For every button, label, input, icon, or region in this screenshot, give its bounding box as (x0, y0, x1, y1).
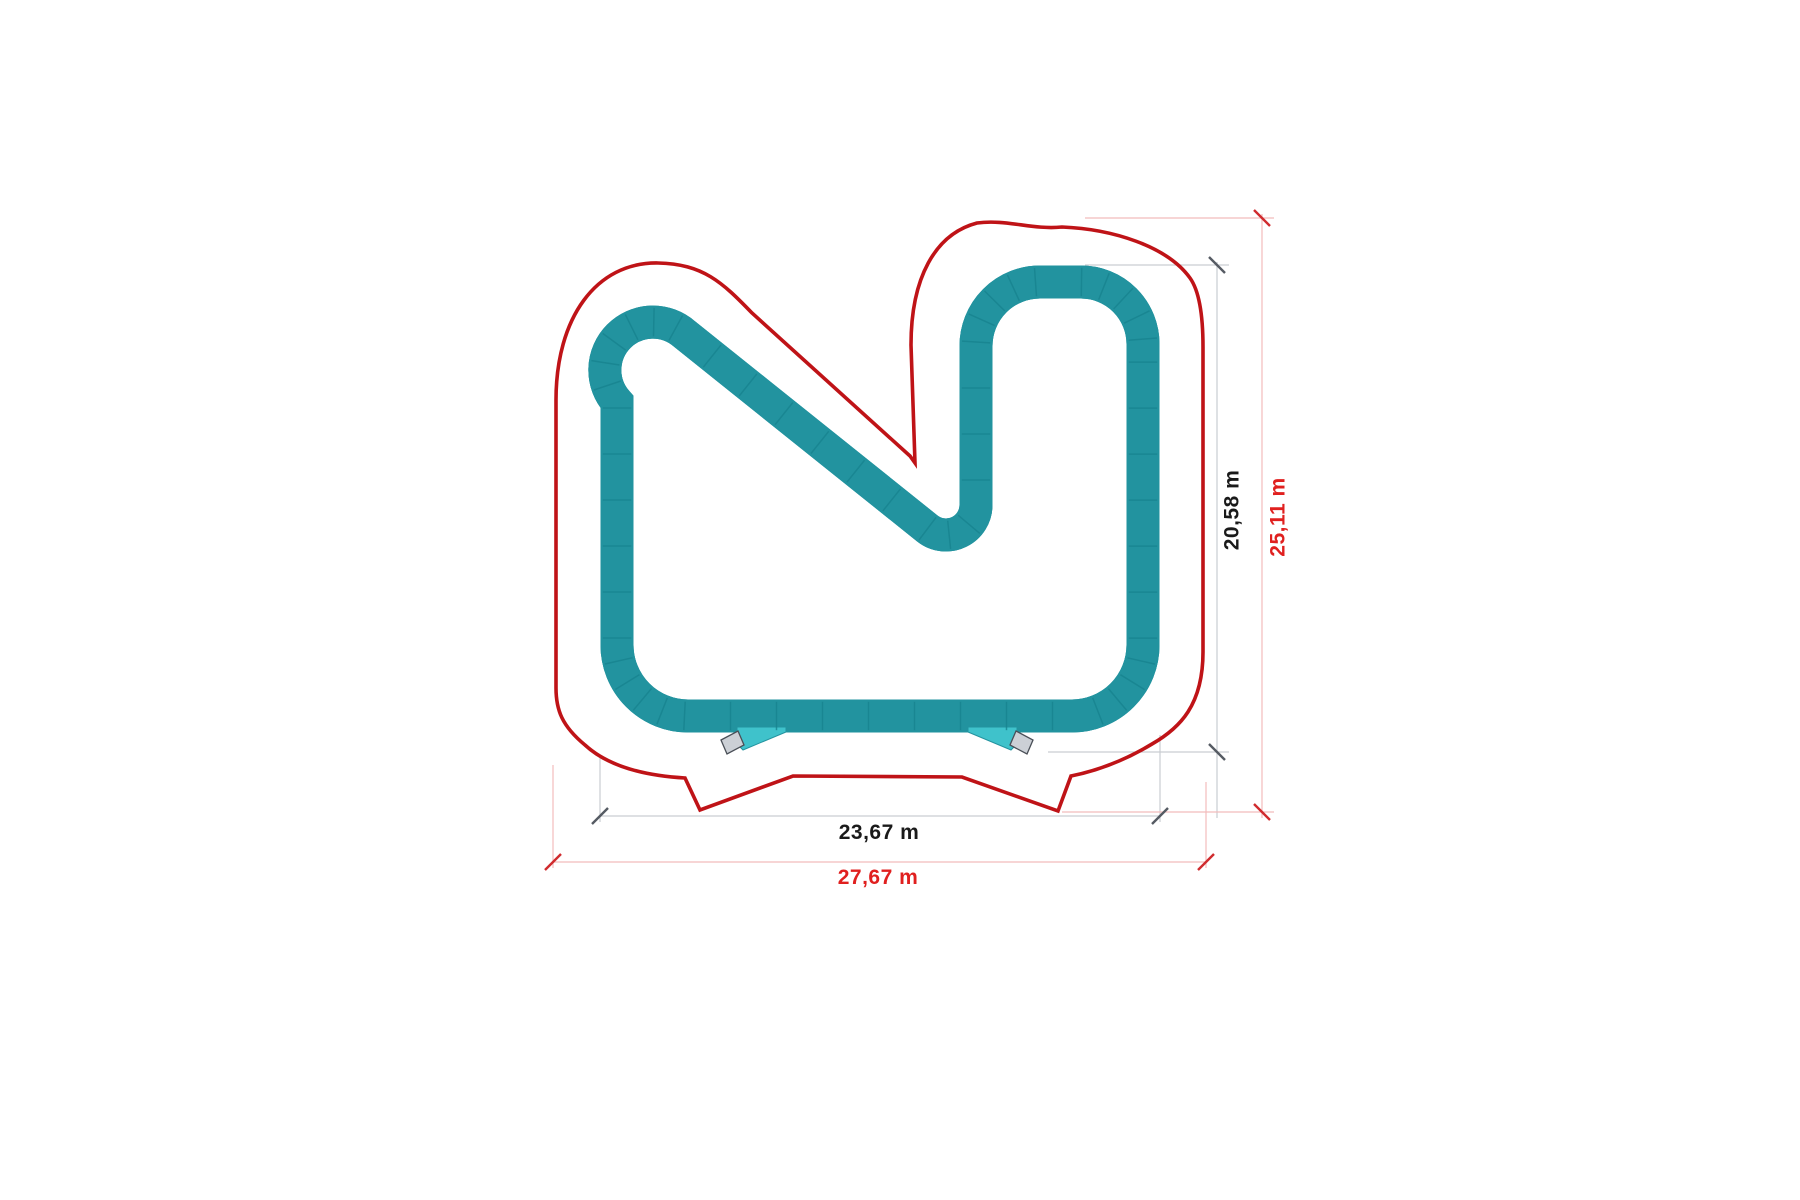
pumptrack-plan: 20,58 m 25,11 m 23,67 m 27,67 m (0, 0, 1800, 1200)
label-overall-width: 27,67 m (838, 866, 919, 889)
track-surface-highlight (605, 282, 1143, 716)
track (605, 282, 1143, 716)
label-track-width: 23,67 m (839, 821, 920, 844)
ramp-bulge-left (737, 727, 786, 750)
ramp-bulge-right (968, 727, 1017, 750)
diagram-canvas: 20,58 m 25,11 m 23,67 m 27,67 m (0, 0, 1800, 1200)
track-seam (654, 308, 655, 336)
label-track-height: 20,58 m (1221, 470, 1244, 551)
label-overall-height: 25,11 m (1267, 477, 1290, 556)
